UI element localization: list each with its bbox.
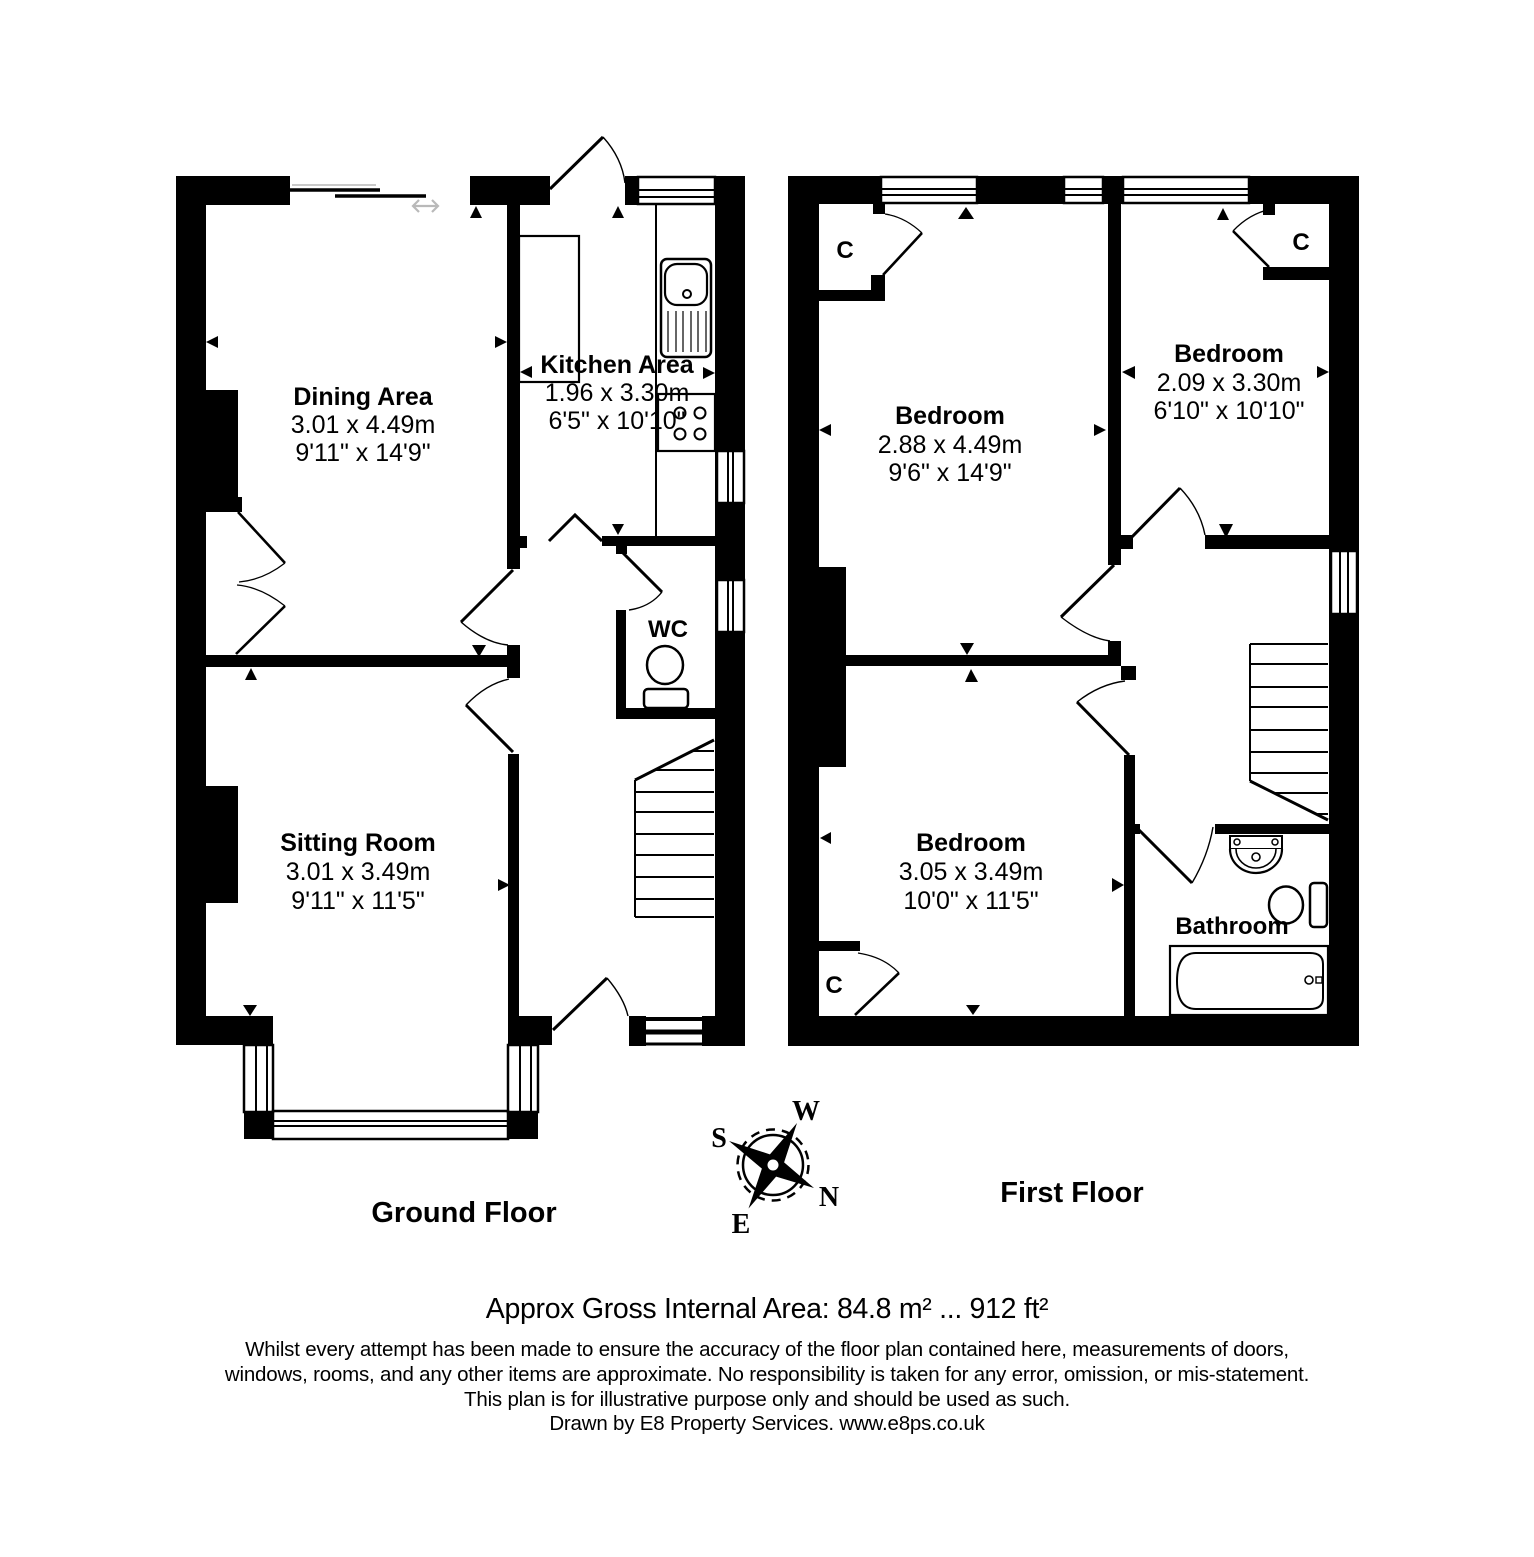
svg-text:9'6" x 14'9": 9'6" x 14'9" xyxy=(888,459,1011,487)
svg-text:2.09 x 3.30m: 2.09 x 3.30m xyxy=(1157,369,1302,397)
svg-text:S: S xyxy=(711,1123,727,1154)
svg-text:C: C xyxy=(1292,229,1309,256)
svg-text:Bedroom: Bedroom xyxy=(895,402,1005,430)
svg-text:3.01 x 3.49m: 3.01 x 3.49m xyxy=(286,858,431,886)
svg-text:3.01 x 4.49m: 3.01 x 4.49m xyxy=(291,411,436,439)
svg-text:6'10" x 10'10": 6'10" x 10'10" xyxy=(1153,397,1304,425)
svg-text:2.88 x 4.49m: 2.88 x 4.49m xyxy=(878,431,1023,459)
svg-text:First Floor: First Floor xyxy=(1000,1177,1143,1209)
svg-text:3.05 x 3.49m: 3.05 x 3.49m xyxy=(899,858,1044,886)
svg-text:9'11" x 11'5": 9'11" x 11'5" xyxy=(291,887,424,915)
svg-text:C: C xyxy=(836,237,853,264)
svg-text:WC: WC xyxy=(648,616,688,643)
svg-text:10'0" x 11'5": 10'0" x 11'5" xyxy=(903,887,1038,915)
svg-text:6'5" x 10'10": 6'5" x 10'10" xyxy=(548,407,685,435)
svg-text:C: C xyxy=(825,972,842,999)
svg-text:Bedroom: Bedroom xyxy=(1174,340,1284,368)
svg-text:E: E xyxy=(732,1209,751,1240)
svg-text:Ground Floor: Ground Floor xyxy=(371,1197,556,1229)
svg-text:Whilst every attempt has been: Whilst every attempt has been made to en… xyxy=(245,1338,1289,1361)
svg-text:Dining Area: Dining Area xyxy=(293,383,433,411)
svg-text:This plan is for illustrative: This plan is for illustrative purpose on… xyxy=(464,1388,1070,1411)
svg-text:Drawn by E8 Property Services.: Drawn by E8 Property Services. www.e8ps.… xyxy=(549,1412,985,1435)
svg-text:Bathroom: Bathroom xyxy=(1175,913,1288,940)
svg-text:Bedroom: Bedroom xyxy=(916,829,1026,857)
svg-text:Kitchen Area: Kitchen Area xyxy=(540,351,694,379)
svg-text:1.96 x 3.30m: 1.96 x 3.30m xyxy=(545,379,690,407)
svg-text:windows, rooms, and any other: windows, rooms, and any other items are … xyxy=(224,1363,1309,1386)
svg-text:9'11" x 14'9": 9'11" x 14'9" xyxy=(295,439,430,467)
svg-text:Approx Gross Internal Area: 84: Approx Gross Internal Area: 84.8 m² ... … xyxy=(486,1293,1049,1325)
svg-text:Sitting Room: Sitting Room xyxy=(280,829,436,857)
svg-text:W: W xyxy=(792,1096,820,1127)
svg-text:N: N xyxy=(819,1182,839,1213)
